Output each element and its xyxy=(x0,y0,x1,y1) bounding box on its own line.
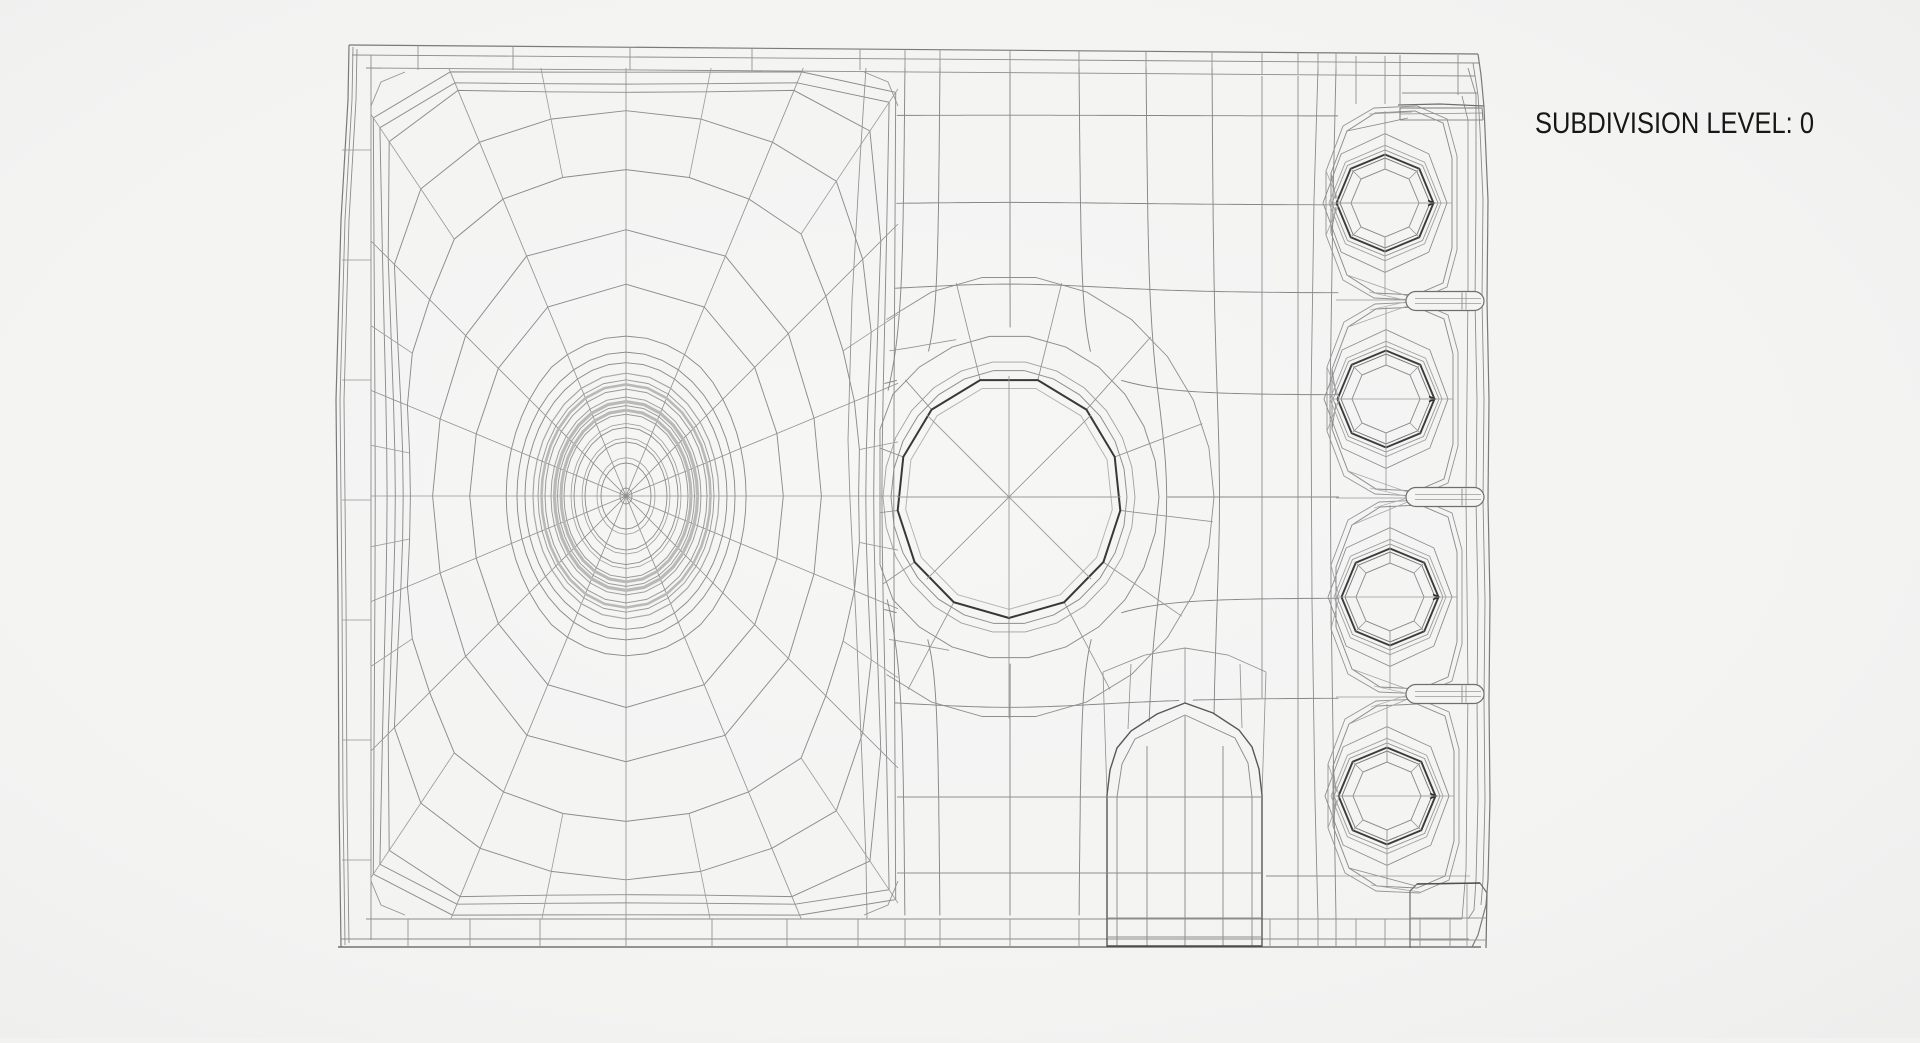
svg-text:SUBDIVISION LEVEL: 0: SUBDIVISION LEVEL: 0 xyxy=(1535,107,1814,140)
